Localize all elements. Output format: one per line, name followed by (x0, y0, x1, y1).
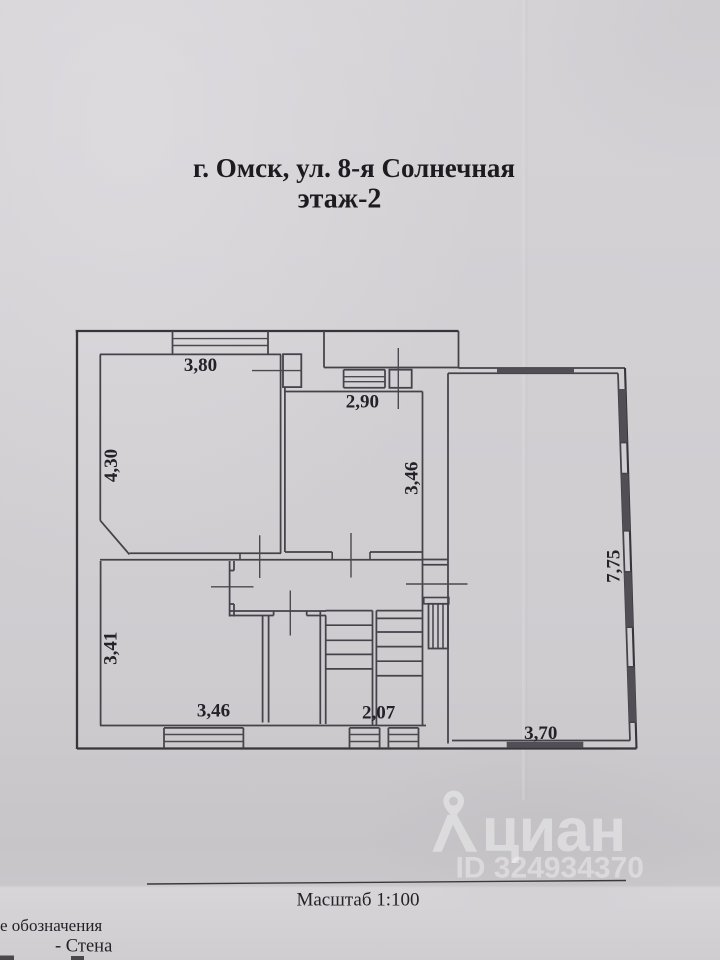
svg-text:этаж-2: этаж-2 (298, 184, 382, 215)
svg-text:2,90: 2,90 (346, 391, 379, 412)
svg-text:3,80: 3,80 (184, 355, 217, 376)
svg-text:2,07: 2,07 (362, 703, 396, 724)
svg-text:г. Омск, ул. 8-я Солнечная: г. Омск, ул. 8-я Солнечная (193, 153, 515, 183)
svg-text:3,41: 3,41 (101, 632, 122, 665)
svg-text:3,70: 3,70 (524, 723, 557, 744)
svg-text:7,75: 7,75 (604, 550, 625, 583)
svg-text:3,46: 3,46 (401, 462, 422, 495)
svg-text:е обозначения: е обозначения (0, 916, 102, 935)
svg-text:- Стена: - Стена (55, 937, 112, 957)
svg-text:3,46: 3,46 (197, 701, 230, 722)
svg-text:Масштаб 1:100: Масштаб 1:100 (296, 890, 419, 911)
svg-text:ID 324934370: ID 324934370 (455, 852, 644, 885)
svg-text:4,30: 4,30 (101, 449, 122, 482)
